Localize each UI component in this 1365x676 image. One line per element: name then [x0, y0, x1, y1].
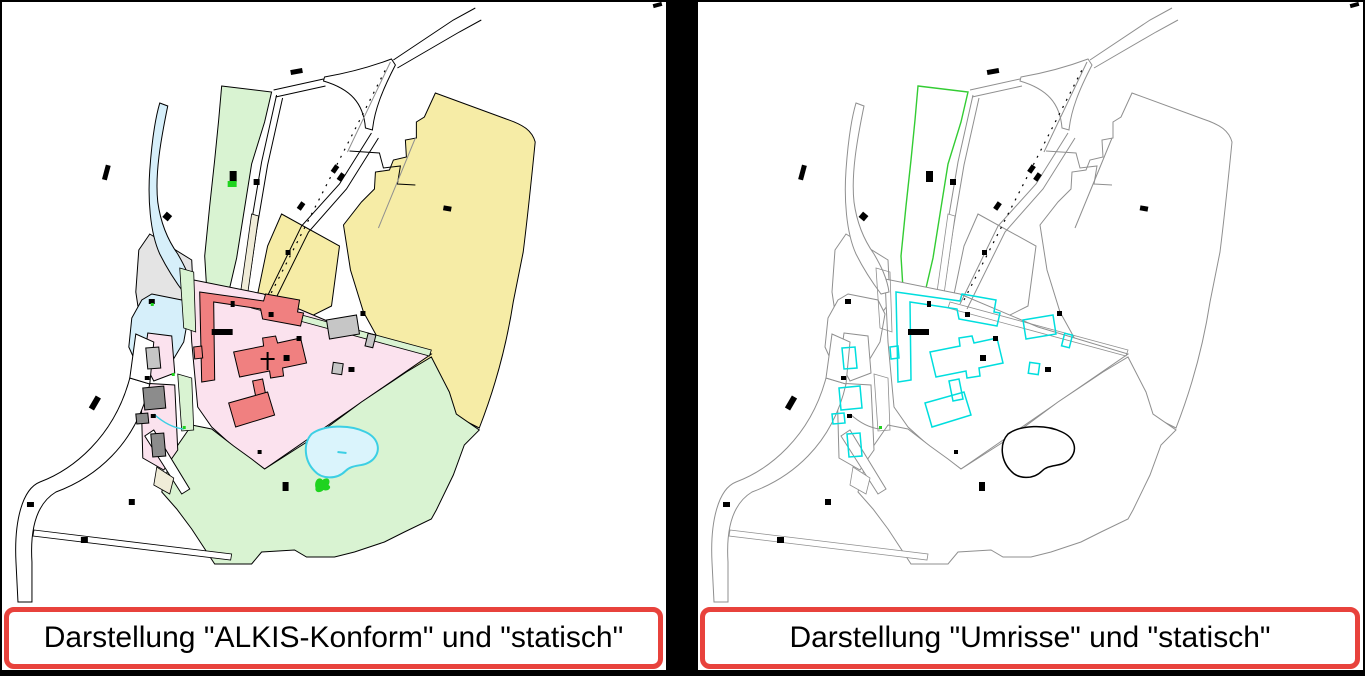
line-northeast-top-2	[1094, 20, 1178, 68]
path-cream-meadow	[937, 214, 955, 294]
symbol-mark	[845, 299, 851, 304]
symbol-mark	[286, 250, 291, 255]
symbol-mark	[798, 165, 807, 181]
symbol-mark	[284, 355, 290, 361]
building-dark-west-3	[136, 413, 149, 424]
symbol-mark	[847, 414, 852, 418]
symbol-mark	[145, 376, 150, 380]
caption-box-alkis: Darstellung "ALKIS-Konform" und "statisc…	[4, 607, 663, 669]
symbol-vegetation-dot	[151, 303, 154, 306]
parcel-sail	[324, 59, 396, 130]
symbol-vegetation-dot	[879, 426, 882, 429]
symbol-mark	[297, 201, 306, 210]
symbol-vegetation-dot	[183, 426, 186, 429]
symbol-mark	[926, 171, 933, 182]
road-main-scurve	[16, 378, 150, 602]
symbol-mark	[653, 2, 663, 8]
symbol-thick-bar	[212, 329, 233, 335]
symbol-mark	[269, 312, 274, 317]
symbol-mark	[1033, 172, 1042, 181]
map-view-umrisse	[698, 2, 1363, 670]
symbol-mark	[337, 172, 346, 181]
line-northeast-top-1	[393, 8, 475, 60]
symbol-mark	[927, 301, 931, 307]
symbol-mark	[89, 395, 101, 410]
panel-divider	[667, 0, 698, 676]
building-dark-west-2	[151, 433, 166, 457]
map-view-alkis	[2, 2, 666, 670]
map-panel-umrisse: Darstellung "Umrisse" und "statisch"	[698, 2, 1363, 670]
symbol-mark	[331, 164, 340, 173]
strip-green-stream-2	[178, 374, 194, 431]
symbol-mark	[231, 301, 235, 307]
parcel-meadow	[901, 86, 968, 302]
symbol-mark	[859, 212, 869, 222]
road-main-scurve	[712, 378, 846, 602]
symbol-mark	[1027, 164, 1036, 173]
symbol-mark	[360, 311, 365, 316]
caption-text-alkis: Darstellung "ALKIS-Konform" und "statisc…	[44, 621, 624, 655]
symbol-mark	[950, 179, 956, 185]
symbol-mark	[980, 355, 986, 361]
symbol-mark	[290, 68, 303, 75]
symbol-mark	[297, 336, 302, 341]
building-gray-west-1	[146, 347, 161, 369]
building-dark-west-1	[143, 386, 166, 410]
symbol-mark	[102, 165, 111, 181]
symbol-mark	[982, 250, 987, 255]
symbol-mark	[81, 537, 88, 543]
symbol-vegetation-square	[228, 181, 237, 187]
symbol-vegetation-dot	[172, 373, 175, 376]
symbol-mark	[162, 212, 172, 222]
symbol-mark	[254, 179, 260, 185]
symbol-mark	[258, 450, 262, 454]
symbol-mark	[965, 312, 970, 317]
pond-inner-dash	[337, 452, 346, 453]
symbol-mark	[283, 482, 289, 491]
symbol-mark	[27, 502, 34, 507]
symbol-mark	[979, 482, 985, 491]
symbol-mark	[993, 201, 1002, 210]
symbol-mark	[129, 499, 135, 505]
strip-green-stream-2	[874, 374, 890, 431]
line-northeast-top-2	[397, 20, 481, 68]
symbol-mark	[954, 450, 958, 454]
building-red-annex	[194, 346, 203, 359]
symbol-mark	[987, 68, 1000, 75]
map-panel-alkis: Darstellung "ALKIS-Konform" und "statisc…	[2, 2, 666, 670]
symbol-mark	[993, 336, 998, 341]
symbol-mark	[841, 376, 846, 380]
path-cream-meadow	[241, 214, 259, 294]
symbol-mark	[151, 414, 156, 418]
symbol-mark	[825, 499, 831, 505]
symbol-mark	[777, 537, 784, 543]
symbol-mark	[723, 502, 730, 507]
symbol-mark	[1350, 2, 1360, 8]
building-gray-small-1	[332, 362, 343, 374]
parcel-meadow	[205, 86, 272, 302]
symbol-thick-bar	[908, 329, 929, 335]
symbol-mark	[348, 367, 354, 372]
caption-text-umrisse: Darstellung "Umrisse" und "statisch"	[789, 621, 1270, 655]
caption-box-umrisse: Darstellung "Umrisse" und "statisch"	[700, 607, 1360, 669]
symbol-mark	[785, 395, 797, 410]
line-northeast-top-1	[1090, 8, 1172, 60]
map-comparison-stage: Darstellung "ALKIS-Konform" und "statisc…	[0, 0, 1365, 676]
symbol-mark	[1057, 311, 1062, 316]
parcel-sail	[1020, 59, 1092, 130]
symbol-mark	[230, 171, 237, 182]
symbol-mark	[1045, 367, 1051, 372]
